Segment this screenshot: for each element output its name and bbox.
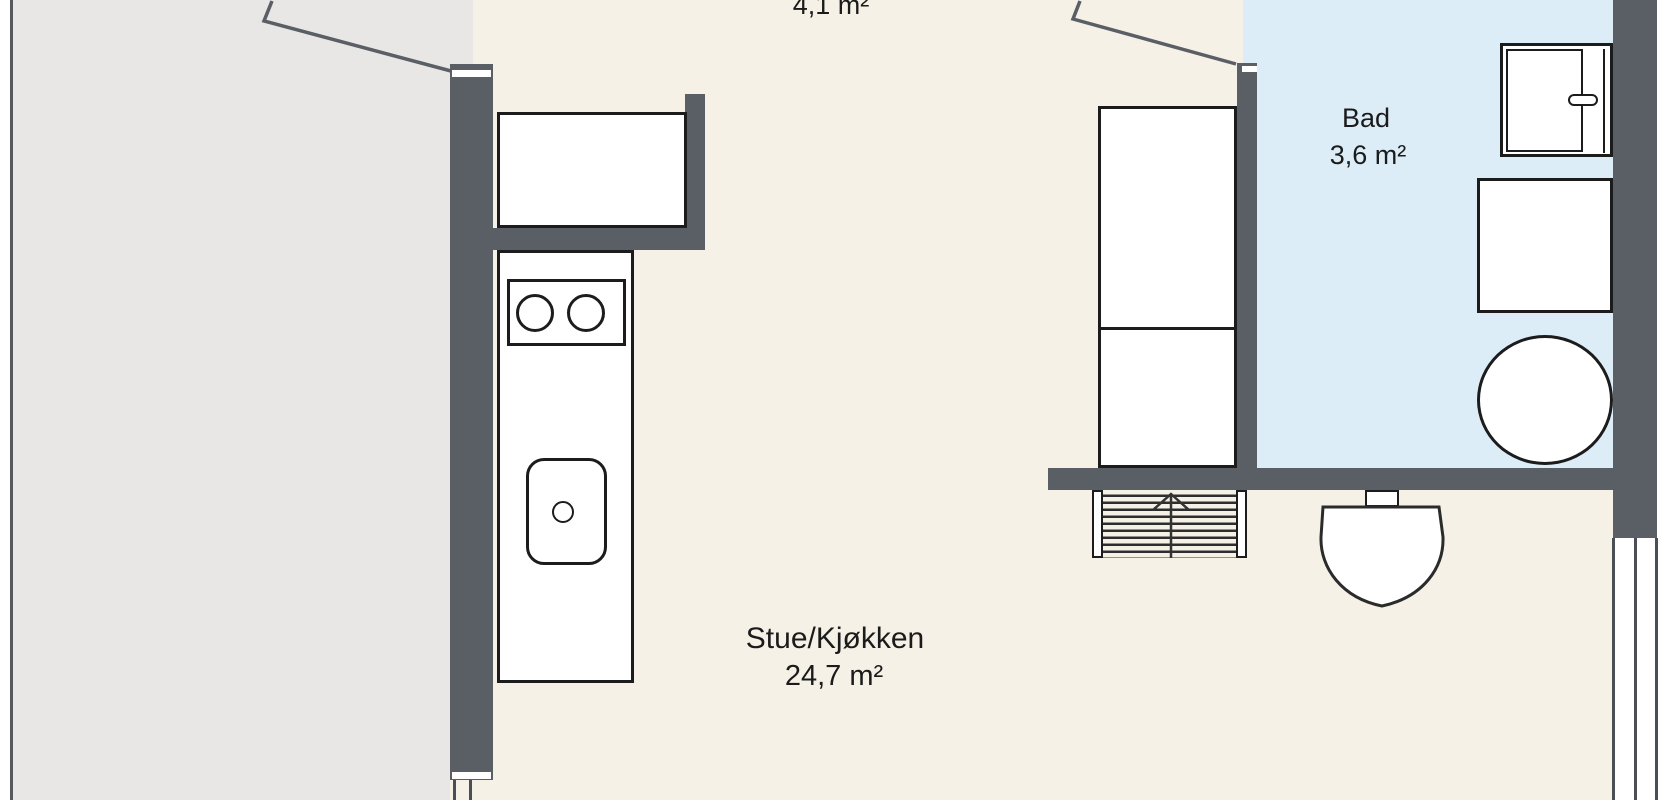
washing-machine	[1477, 335, 1613, 465]
wardrobe	[1098, 106, 1237, 468]
wardrobe-divider	[1098, 327, 1237, 330]
outside-boundary-line	[10, 0, 13, 800]
floorplan-canvas: 4,1 m² Bad 3,6 m² Stue/Kjøkken 24,7 m²	[0, 0, 1670, 800]
window-line-middle	[1634, 538, 1637, 800]
sink-drain-icon	[552, 501, 574, 523]
bathroom-cabinet	[1477, 178, 1613, 313]
burner-right-icon	[567, 294, 605, 332]
window-line-outer	[1655, 538, 1658, 800]
livingroom-name-label: Stue/Kjøkken	[746, 622, 924, 656]
toilet-tank	[1365, 490, 1399, 507]
kitchen-cabinet	[497, 112, 687, 228]
stair-stringer-right	[1236, 490, 1247, 558]
wall-left-bottom-cap	[452, 772, 491, 779]
wall-left-top-cap	[452, 70, 491, 77]
wall-niche-horizontal	[450, 228, 705, 250]
hall-area-label: 4,1 m²	[793, 0, 870, 21]
washbasin-divider	[1603, 49, 1605, 153]
burner-left-icon	[516, 294, 554, 332]
wall-bathroom-west	[1237, 63, 1257, 490]
door-frame-line-right	[469, 780, 472, 800]
faucet-handle-icon	[1568, 94, 1598, 106]
outside-area-top-strip	[450, 0, 473, 68]
wall-niche-vertical	[685, 94, 705, 250]
wall-bathroom-west-cap	[1242, 66, 1257, 72]
wall-bathroom-south	[1048, 468, 1613, 490]
wall-left	[450, 64, 493, 780]
window-line-inner	[1612, 538, 1615, 800]
bathroom-name-label: Bad	[1342, 103, 1390, 134]
stair-stringer-left	[1092, 490, 1103, 558]
livingroom-area-label: 24,7 m²	[785, 660, 883, 693]
bathroom-area-label: 3,6 m²	[1330, 140, 1407, 171]
stair-treads	[1103, 490, 1236, 558]
door-frame-line-left	[453, 780, 456, 800]
wall-right	[1613, 0, 1657, 538]
outside-area	[12, 0, 450, 800]
